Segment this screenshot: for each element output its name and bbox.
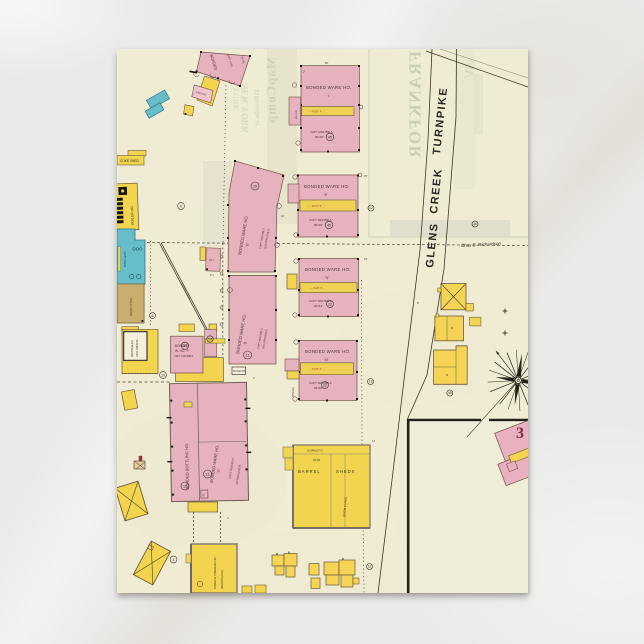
svg-text:10: 10 bbox=[253, 184, 257, 188]
svg-text:1½: 1½ bbox=[210, 273, 215, 277]
svg-text:- - PLAT. 5' - -: - - PLAT. 5' - - bbox=[310, 286, 326, 290]
svg-text:AV: AV bbox=[462, 61, 477, 79]
svg-text:BONDED WARE HO.: BONDED WARE HO. bbox=[305, 267, 351, 272]
svg-text:4: 4 bbox=[173, 558, 175, 562]
svg-text:11Broadway: 11Broadway bbox=[253, 89, 261, 127]
svg-text:12: 12 bbox=[323, 383, 327, 387]
svg-text:80'x93': 80'x93' bbox=[314, 223, 323, 227]
svg-text:W. HO. 'F': W. HO. 'F' bbox=[175, 349, 190, 353]
svg-text:- - PLAT. 5' - -: - - PLAT. 5' - - bbox=[309, 367, 325, 371]
svg-text:- - - 18 FT. 5' - - -: - - - 18 FT. 5' - - - bbox=[307, 204, 327, 208]
svg-text:BONDED: BONDED bbox=[292, 386, 295, 397]
svg-text:10: 10 bbox=[473, 222, 477, 226]
svg-text:45: 45 bbox=[328, 135, 332, 139]
svg-text:'I': 'I' bbox=[327, 94, 330, 98]
svg-text:12: 12 bbox=[368, 565, 372, 569]
svg-text:45: 45 bbox=[448, 391, 452, 395]
svg-text:YORK: YORK bbox=[232, 87, 241, 112]
svg-text:DRY: DRY bbox=[209, 259, 215, 262]
svg-text:OF 80: OF 80 bbox=[313, 458, 321, 462]
svg-text:'N': 'N' bbox=[325, 276, 329, 280]
svg-text:BOILER HO.: BOILER HO. bbox=[130, 205, 135, 225]
svg-text:20': 20' bbox=[364, 174, 368, 178]
svg-text:BONDED WARE HO.: BONDED WARE HO. bbox=[304, 184, 350, 189]
svg-text:10: 10 bbox=[161, 373, 165, 377]
svg-text:BONDED WARE HO.: BONDED WARE HO. bbox=[306, 85, 352, 90]
svg-text:8: 8 bbox=[152, 314, 154, 318]
svg-text:12: 12 bbox=[369, 206, 373, 210]
svg-text:16': 16' bbox=[281, 214, 285, 218]
svg-text:GRAIN ELEV.: GRAIN ELEV. bbox=[130, 339, 134, 357]
svg-text:12: 12 bbox=[328, 302, 332, 306]
svg-text:COKE SHED: COKE SHED bbox=[120, 159, 139, 163]
svg-text:11: 11 bbox=[246, 353, 250, 357]
svg-text:18': 18' bbox=[364, 257, 368, 261]
svg-text:7: 7 bbox=[303, 70, 305, 74]
svg-text:BARREL: BARREL bbox=[298, 469, 321, 474]
svg-text:6: 6 bbox=[180, 204, 182, 208]
svg-text:ENG RM: ENG RM bbox=[296, 110, 298, 119]
svg-text:13: 13 bbox=[183, 344, 187, 348]
svg-text:'K': 'K' bbox=[324, 193, 328, 197]
svg-text:BONDED WARE HO.: BONDED WARE HO. bbox=[305, 349, 351, 354]
svg-text:60'x61': 60'x61' bbox=[314, 304, 323, 308]
svg-text:MapComp: MapComp bbox=[264, 57, 279, 124]
svg-text:FRANKFOR: FRANKFOR bbox=[406, 51, 425, 159]
svg-text:11: 11 bbox=[206, 472, 210, 476]
svg-text:SCALE HO: SCALE HO bbox=[233, 370, 245, 373]
svg-text:NEW YORK: NEW YORK bbox=[240, 83, 250, 133]
svg-text:45: 45 bbox=[327, 223, 331, 227]
svg-text:14: 14 bbox=[208, 337, 212, 341]
svg-text:CAPY 1250 BBLS: CAPY 1250 BBLS bbox=[174, 355, 194, 358]
svg-text:- - PLAT. 4' - -: - - PLAT. 4' - - bbox=[309, 110, 325, 114]
svg-text:SHEDS: SHEDS bbox=[336, 469, 355, 474]
svg-text:80': 80' bbox=[325, 61, 329, 65]
svg-text:CIDER & VINEGAR HO.: CIDER & VINEGAR HO. bbox=[213, 556, 217, 589]
svg-text:(CAPACITY): (CAPACITY) bbox=[307, 449, 323, 453]
svg-text:CAPY 20000 BU.: CAPY 20000 BU. bbox=[136, 338, 139, 357]
svg-text:S: S bbox=[202, 493, 204, 497]
svg-text:80'x90': 80'x90' bbox=[315, 135, 324, 139]
svg-text:DISTILLERY: DISTILLERY bbox=[123, 251, 127, 267]
svg-text:GRAIN STGE: GRAIN STGE bbox=[129, 297, 133, 316]
svg-text:13: 13 bbox=[369, 380, 373, 384]
svg-text:'M': 'M' bbox=[324, 358, 329, 362]
svg-text:3: 3 bbox=[516, 425, 524, 442]
svg-text:12: 12 bbox=[183, 484, 187, 488]
svg-text:(FROM PLANS): (FROM PLANS) bbox=[220, 570, 224, 589]
